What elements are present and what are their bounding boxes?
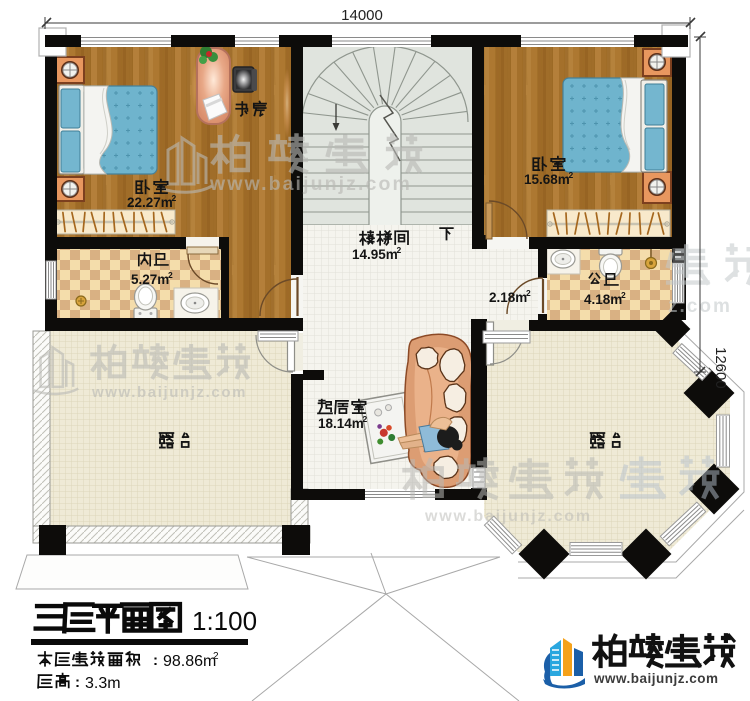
svg-text:2.18m: 2.18m	[489, 290, 527, 305]
svg-text:1:100: 1:100	[192, 606, 257, 636]
svg-text:22.27m: 22.27m	[127, 195, 173, 210]
svg-text:2: 2	[363, 414, 368, 424]
svg-text::: :	[153, 652, 158, 669]
svg-text:3.3m: 3.3m	[85, 675, 121, 692]
svg-text::: :	[75, 674, 80, 691]
svg-text:4.18m: 4.18m	[584, 292, 622, 307]
svg-text:98.86m: 98.86m	[163, 653, 216, 670]
svg-text:www.baijunjz.com: www.baijunjz.com	[91, 384, 247, 401]
svg-text:www.baijunjz.com: www.baijunjz.com	[209, 173, 412, 195]
svg-text:18.14m: 18.14m	[318, 416, 364, 431]
svg-text:2: 2	[621, 290, 626, 300]
svg-text:14000: 14000	[341, 7, 383, 24]
svg-text:www.baijunjz.com: www.baijunjz.com	[593, 671, 719, 686]
svg-text:14.95m: 14.95m	[352, 247, 398, 262]
svg-text:2: 2	[397, 245, 402, 255]
svg-text:2: 2	[569, 170, 574, 180]
svg-text:www.baijunjz.com: www.baijunjz.com	[424, 508, 592, 525]
svg-text:2: 2	[172, 193, 177, 203]
svg-text:2: 2	[213, 651, 219, 662]
svg-text:12600: 12600	[712, 347, 729, 389]
svg-text:15.68m: 15.68m	[524, 172, 570, 187]
svg-text:2: 2	[526, 288, 531, 298]
svg-text:2: 2	[168, 270, 173, 280]
svg-text:5.27m: 5.27m	[131, 272, 169, 287]
